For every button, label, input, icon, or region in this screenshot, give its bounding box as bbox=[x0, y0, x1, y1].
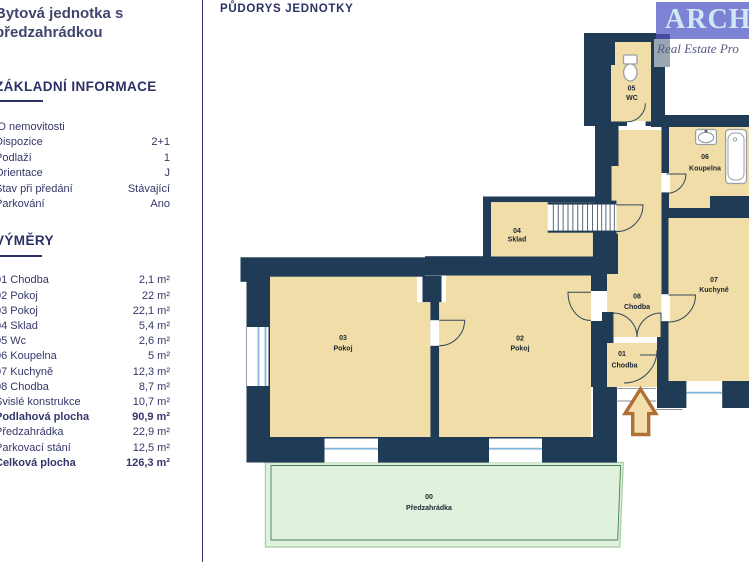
svg-text:Sklad: Sklad bbox=[508, 237, 527, 244]
svg-text:01: 01 bbox=[618, 351, 626, 358]
svg-text:Pokoj: Pokoj bbox=[333, 346, 352, 353]
svg-text:00: 00 bbox=[425, 494, 433, 501]
svg-text:WC: WC bbox=[626, 95, 638, 102]
svg-text:04: 04 bbox=[513, 228, 521, 235]
svg-text:Kuchyně: Kuchyně bbox=[699, 287, 729, 294]
svg-text:02: 02 bbox=[516, 336, 524, 343]
svg-text:05: 05 bbox=[628, 86, 636, 93]
svg-text:Koupelna: Koupelna bbox=[689, 166, 721, 173]
svg-text:Předzahrádka: Předzahrádka bbox=[406, 505, 452, 512]
svg-text:03: 03 bbox=[339, 335, 347, 342]
svg-text:Chodba: Chodba bbox=[624, 304, 650, 311]
svg-text:06: 06 bbox=[701, 154, 709, 161]
svg-text:Pokoj: Pokoj bbox=[510, 346, 529, 353]
svg-text:Chodba: Chodba bbox=[611, 363, 637, 370]
svg-text:08: 08 bbox=[633, 294, 641, 301]
svg-text:07: 07 bbox=[710, 277, 718, 284]
